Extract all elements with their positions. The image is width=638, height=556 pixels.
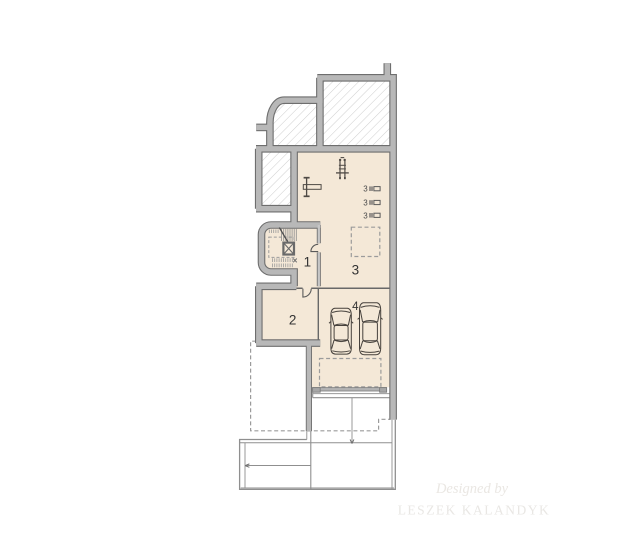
svg-text:4: 4 bbox=[352, 301, 359, 313]
svg-text:3: 3 bbox=[363, 199, 368, 208]
svg-text:Designed by: Designed by bbox=[435, 481, 509, 497]
svg-text:1: 1 bbox=[304, 254, 312, 269]
svg-text:3: 3 bbox=[363, 185, 368, 194]
svg-text:3: 3 bbox=[363, 211, 368, 220]
svg-text:LESZEK KALANDYK: LESZEK KALANDYK bbox=[398, 503, 551, 518]
svg-text:2: 2 bbox=[289, 312, 297, 327]
svg-text:3: 3 bbox=[352, 263, 360, 278]
